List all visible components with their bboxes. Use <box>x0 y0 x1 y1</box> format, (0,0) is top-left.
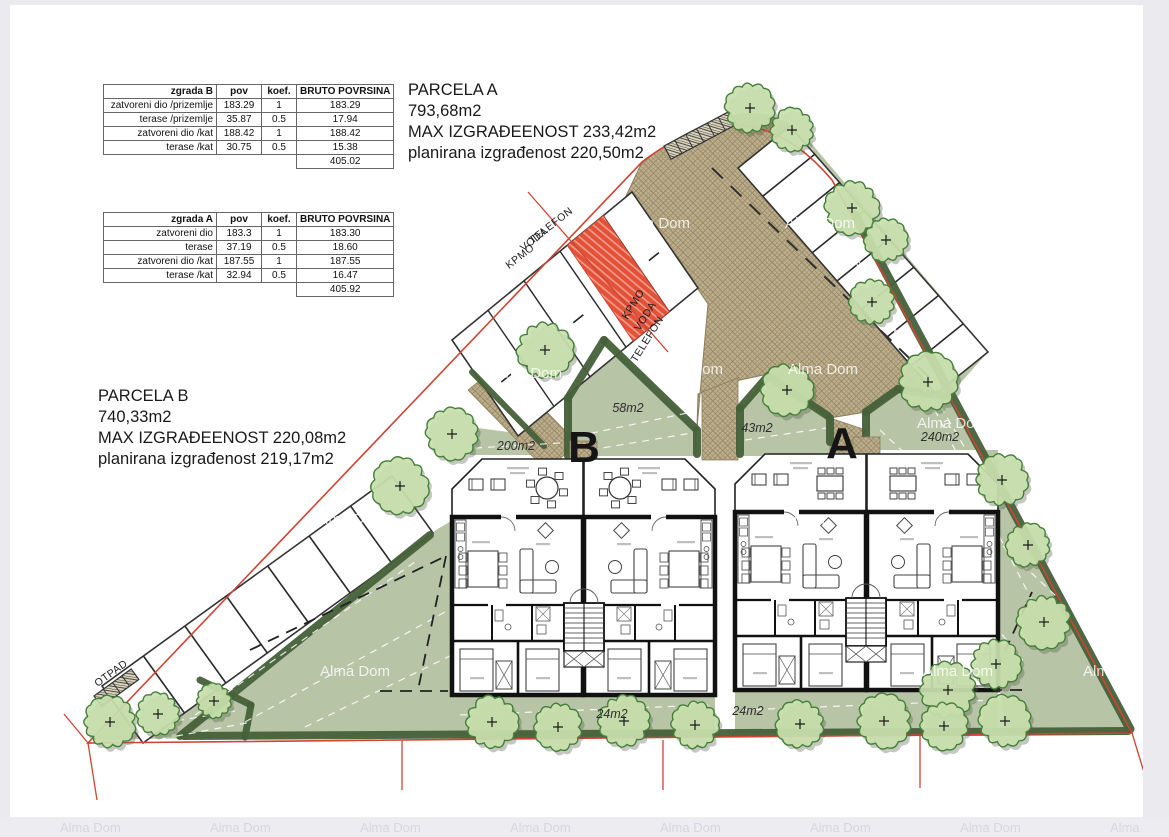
watermark-text: Alma Dom <box>1110 820 1169 837</box>
table-cell: 30.75 <box>217 141 262 155</box>
building-a-label: A <box>826 419 858 468</box>
table-cell: 183.30 <box>297 227 394 241</box>
watermark-text: Alma Dom <box>788 361 858 378</box>
table-cell: terase /kat <box>104 269 217 283</box>
watermark-text: Alma Dom <box>785 215 855 232</box>
table-row: terase /kat32.940.516.47 <box>104 269 394 283</box>
watermark-text: Alma Dom <box>315 511 385 528</box>
watermark-text: Alma Dom <box>320 663 390 680</box>
page-edge-left <box>0 0 10 837</box>
page-edge-right <box>1143 0 1169 837</box>
tree-icon <box>978 694 1034 751</box>
tree-icon <box>425 407 481 465</box>
garden-43m2-label: 43m2 <box>741 421 772 435</box>
watermark-text: Alma Dom <box>60 820 121 835</box>
table-cell: 183.29 <box>297 99 394 113</box>
parcela-a-info: PARCELA A 793,68m2 MAX IZGRAĐEENOST 233,… <box>408 80 656 164</box>
table-cell: 16.47 <box>297 269 394 283</box>
table-header-cell: koef. <box>262 85 297 99</box>
table-row: zatvoreni dio /prizemlje183.291183.29 <box>104 99 394 113</box>
table-total-row: 405.02 <box>104 155 394 169</box>
table-cell: 1 <box>262 127 297 141</box>
table-cell: 183.3 <box>217 227 262 241</box>
parcela-a-size: 793,68m2 <box>408 101 656 122</box>
parcela-b-info: PARCELA B 740,33m2 MAX IZGRAĐEENOST 220,… <box>98 386 346 470</box>
table-cell: 0.5 <box>262 269 297 283</box>
zgrada-b-area-table: zgrada Bpovkoef.BRUTO POVRSINAzatvoreni … <box>103 84 394 169</box>
parcela-b-title: PARCELA B <box>98 386 346 407</box>
tree-icon <box>534 703 585 755</box>
parcela-b-planned: planirana izgrađenost 219,17m2 <box>98 449 346 470</box>
table-cell: terase <box>104 241 217 255</box>
building-a-floorplan <box>735 454 998 690</box>
table-cell: 188.42 <box>297 127 394 141</box>
garden-24m2-label-b: 24m2 <box>595 707 627 721</box>
watermark-text: Alma Dom <box>755 514 825 531</box>
building-b-floorplan <box>452 459 715 695</box>
garden-24m2-label-a: 24m2 <box>731 704 763 718</box>
table-cell: 183.29 <box>217 99 262 113</box>
table-row: zatvoreni dio /kat187.551187.55 <box>104 255 394 269</box>
watermark-text: Alma Dom <box>660 820 721 835</box>
garden-200m2-label: 200m2 <box>496 439 535 453</box>
table-row: terase /kat30.750.515.38 <box>104 141 394 155</box>
table-cell: 1 <box>262 227 297 241</box>
table-row: zatvoreni dio183.31183.30 <box>104 227 394 241</box>
parcela-b-size: 740,33m2 <box>98 407 346 428</box>
watermark-text: Alma Dom <box>810 820 871 835</box>
parcela-a-max: MAX IZGRAĐEENOST 233,42m2 <box>408 122 656 143</box>
table-row: terase /prizemlje35.870.517.94 <box>104 113 394 127</box>
watermark-text: Alma Dom <box>620 215 690 232</box>
table-header-cell: pov <box>217 85 262 99</box>
table-total-value: 405.92 <box>297 283 394 297</box>
table-header-cell: koef. <box>262 213 297 227</box>
table-header-cell: pov <box>217 213 262 227</box>
table-cell: 17.94 <box>297 113 394 127</box>
watermark-text: Alma Dom <box>210 820 271 835</box>
table-total-value: 405.02 <box>297 155 394 169</box>
table-cell: 0.5 <box>262 113 297 127</box>
table-row: zatvoreni dio /kat188.421188.42 <box>104 127 394 141</box>
watermark-text: Alma Dom <box>960 820 1021 835</box>
table-cell: zatvoreni dio /prizemlje <box>104 99 217 113</box>
table-total-row: 405.92 <box>104 283 394 297</box>
parcela-b-max: MAX IZGRAĐEENOST 220,08m2 <box>98 428 346 449</box>
table-cell: terase /prizemlje <box>104 113 217 127</box>
watermark-text: Alma Dom <box>917 415 987 432</box>
site-plan-page: BA58m243m2200m2240m224m224m2TELEFONVODAK… <box>0 0 1169 837</box>
watermark-text: Alma Dom <box>360 820 421 835</box>
building-b-label: B <box>568 423 600 472</box>
table-cell: terase /kat <box>104 141 217 155</box>
parcela-a-planned: planirana izgrađenost 220,50m2 <box>408 143 656 164</box>
table-row: terase37.190.518.60 <box>104 241 394 255</box>
parcela-a-title: PARCELA A <box>408 80 656 101</box>
table-cell: zatvoreni dio <box>104 227 217 241</box>
watermark-text: Alma Dom <box>923 663 993 680</box>
watermark-text: Alma Dom <box>492 365 562 382</box>
table-cell: 32.94 <box>217 269 262 283</box>
zgrada-a-area-table: zgrada Apovkoef.BRUTO POVRSINAzatvoreni … <box>103 212 394 297</box>
table-header-cell: zgrada A <box>104 213 217 227</box>
table-cell: 18.60 <box>297 241 394 255</box>
building-floorplans <box>452 454 998 695</box>
table-cell: 0.5 <box>262 141 297 155</box>
watermark-text: Alma Dom <box>510 820 571 835</box>
table-cell: zatvoreni dio /kat <box>104 127 217 141</box>
table-cell: 35.87 <box>217 113 262 127</box>
table-cell: 1 <box>262 99 297 113</box>
table-cell: zatvoreni dio /kat <box>104 255 217 269</box>
table-cell: 188.42 <box>217 127 262 141</box>
table-header-cell: BRUTO POVRSINA <box>297 213 394 227</box>
table-cell: 15.38 <box>297 141 394 155</box>
garden-240m2-label: 240m2 <box>920 430 959 444</box>
watermark-text: Alma Dom <box>653 361 723 378</box>
table-cell: 187.55 <box>217 255 262 269</box>
table-cell: 37.19 <box>217 241 262 255</box>
table-header-cell: BRUTO POVRSINA <box>297 85 394 99</box>
tree-icon <box>920 702 971 755</box>
garden-58m2-label: 58m2 <box>612 401 643 415</box>
table-cell: 187.55 <box>297 255 394 269</box>
table-cell: 0.5 <box>262 241 297 255</box>
page-edge-top <box>0 0 1169 5</box>
table-cell: 1 <box>262 255 297 269</box>
table-header-cell: zgrada B <box>104 85 217 99</box>
